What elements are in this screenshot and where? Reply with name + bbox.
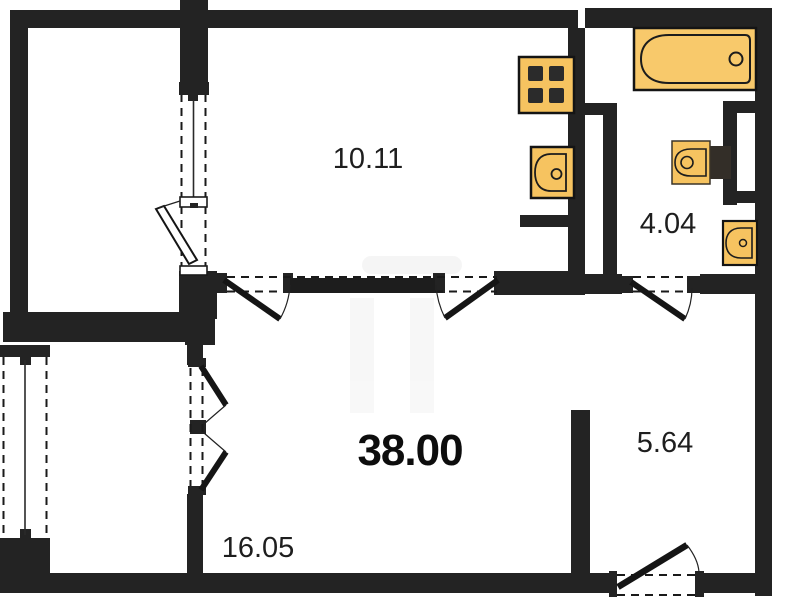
wall-corridor-left xyxy=(568,274,622,294)
wall-top-left xyxy=(10,10,182,28)
door-swing-arc xyxy=(158,201,180,208)
wall-living-left-bottom xyxy=(187,494,203,575)
wall-bottom-right xyxy=(704,573,772,593)
wall-segment-bar xyxy=(290,278,435,293)
bathroom-sink-icon xyxy=(723,221,757,265)
labels: 10.11 4.04 5.64 16.05 38.00 xyxy=(222,143,697,564)
total-area-label: 38.00 xyxy=(357,426,462,475)
wall-left-upper xyxy=(10,10,28,313)
wall-top-kitchen xyxy=(205,10,578,28)
toilet-icon xyxy=(672,141,731,184)
wall-balcony-divider xyxy=(3,312,193,342)
door-jamb xyxy=(609,571,617,597)
kitchen-area-label: 10.11 xyxy=(333,143,403,175)
wall-under-window xyxy=(179,271,217,319)
floor-plan: 10.11 4.04 5.64 16.05 38.00 xyxy=(0,0,789,600)
door-swing-arc xyxy=(204,405,226,424)
window-sill xyxy=(0,538,50,550)
french-door-center-block xyxy=(190,420,206,434)
door-leaf xyxy=(445,280,498,318)
floor-plan-drawing: 10.11 4.04 5.64 16.05 38.00 xyxy=(0,0,789,600)
french-door-leaf xyxy=(201,366,226,405)
wall-kitchen-nook xyxy=(520,215,568,227)
door-jamb xyxy=(695,571,704,597)
door-swing-arc xyxy=(204,433,226,452)
wall-corner-block xyxy=(0,547,50,593)
door-leaf xyxy=(631,282,685,319)
balcony-door-leaf xyxy=(156,206,197,264)
stove-icon xyxy=(519,57,574,113)
french-door-leaf xyxy=(201,452,226,490)
window-mullion xyxy=(188,93,198,101)
door-swing-arc xyxy=(687,545,699,572)
window-sill xyxy=(180,266,207,275)
wall-corridor-right xyxy=(700,274,772,294)
door-jamb xyxy=(687,276,700,293)
bathroom-area-label: 4.04 xyxy=(640,208,696,240)
wall-hallway-partition xyxy=(571,410,590,573)
window-mullion xyxy=(190,203,198,208)
kitchen-sink-icon xyxy=(531,147,574,198)
wall-bottom xyxy=(0,573,609,593)
living-room-area-label: 16.05 xyxy=(222,532,295,564)
fixtures xyxy=(519,28,757,265)
wall-niche-bottom xyxy=(723,191,757,203)
bathtub-icon xyxy=(634,28,756,90)
door-leaf xyxy=(224,280,280,319)
wall-top-bathroom xyxy=(585,8,757,28)
wall-shaft-right xyxy=(603,103,617,281)
wall-stub-top xyxy=(180,0,208,88)
hallway-area-label: 5.64 xyxy=(637,427,693,459)
wall-right xyxy=(755,8,772,596)
entrance-door-leaf xyxy=(618,545,687,587)
